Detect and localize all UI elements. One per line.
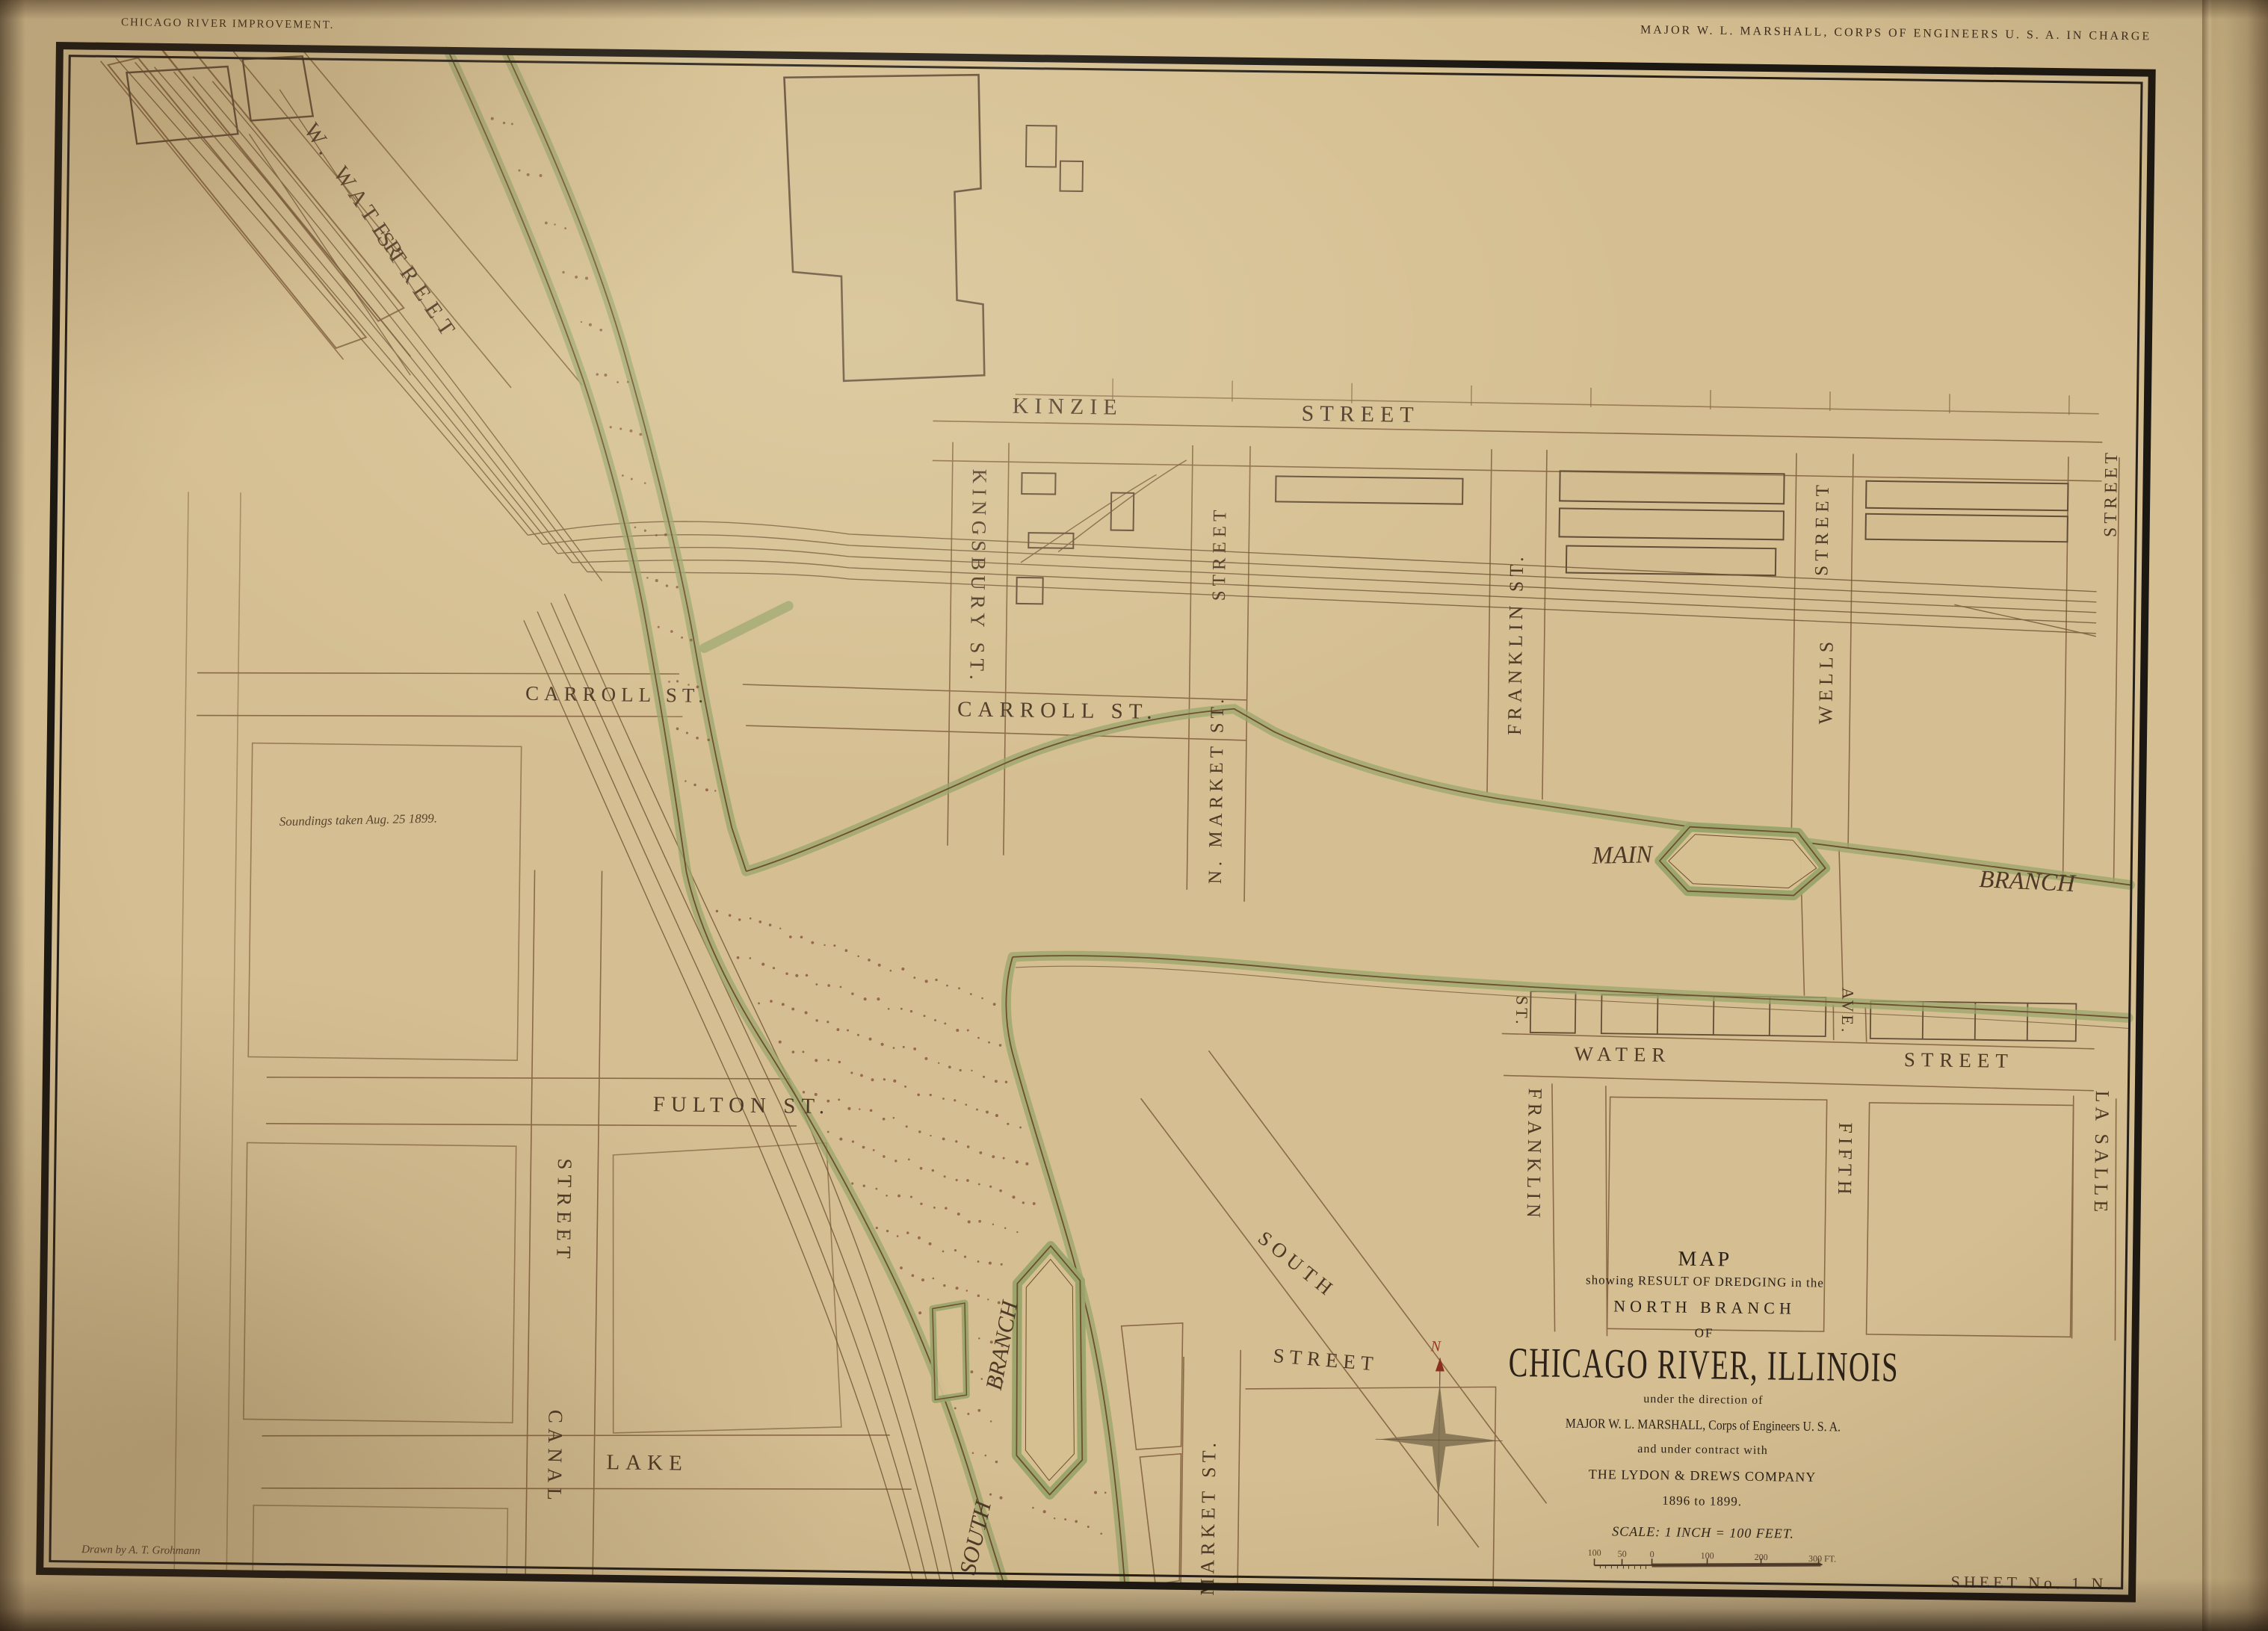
- map-label: KINGSBURY ST.: [966, 469, 989, 685]
- map-label: STREET: [373, 229, 463, 346]
- map-label: 0: [1650, 1550, 1654, 1559]
- map-label: 1896 to 1899.: [1662, 1494, 1742, 1508]
- map-label: 300 FT.: [1808, 1554, 1836, 1563]
- map-label: N: [1430, 1339, 1441, 1354]
- map-label: CHICAGO RIVER, ILLINOIS: [1508, 1342, 1899, 1389]
- map-label: CARROLL ST.: [525, 684, 708, 706]
- map-label: CANAL: [544, 1410, 566, 1505]
- map-label: and under contract with: [1637, 1443, 1768, 1457]
- map-label: AVE.: [1839, 987, 1856, 1035]
- map-label: STREET: [1301, 403, 1419, 427]
- map-label: MAJOR W. L. MARSHALL, Corps of Engineers…: [1566, 1417, 1841, 1434]
- map-label: 50: [1618, 1550, 1627, 1559]
- map-label: showing RESULT OF DREDGING in the: [1586, 1273, 1824, 1289]
- map-label: KINZIE: [1013, 395, 1123, 419]
- map-label: STREET: [2102, 449, 2122, 537]
- map-label: MAIN: [1592, 843, 1652, 869]
- map-label: STREET: [1210, 505, 1230, 601]
- map-label: STREET: [553, 1158, 575, 1263]
- map-label: MARKET ST.: [1198, 1438, 1220, 1596]
- map-label: ST.: [1513, 996, 1530, 1027]
- map-label: MAP: [1678, 1249, 1732, 1271]
- map-label: STREET: [1904, 1050, 2014, 1071]
- map-label: OF: [1695, 1326, 1714, 1339]
- map-label: FIFTH: [1835, 1122, 1855, 1199]
- map-label: NORTH BRANCH: [1613, 1298, 1796, 1316]
- map-photo: CHICAGO RIVER IMPROVEMENT. MAJOR W. L. M…: [0, 0, 2268, 1631]
- map-label: N. MARKET ST.: [1206, 695, 1227, 885]
- map-label: SCALE: 1 INCH = 100 FEET.: [1612, 1524, 1794, 1540]
- map-label: CARROLL ST.: [957, 699, 1158, 723]
- map-label: LAKE: [606, 1452, 688, 1474]
- map-label: WATER: [1574, 1044, 1671, 1065]
- map-label: STREET: [1273, 1346, 1379, 1375]
- map-label: SHEET No. 1 N.: [1950, 1573, 2115, 1592]
- map-labels: W. WATERSTREETKINZIESTREETKINGSBURY ST.S…: [36, 42, 2156, 1603]
- map-label: Soundings taken Aug. 25 1899.: [279, 812, 438, 829]
- map-label: SOUTH: [1255, 1228, 1340, 1302]
- map-label: BRANCH: [982, 1299, 1022, 1392]
- map-label: 100: [1588, 1548, 1601, 1557]
- map-label: BRANCH: [1979, 867, 2076, 897]
- map-label: WELLS: [1816, 637, 1837, 725]
- map-label: FRANKLIN: [1523, 1088, 1544, 1222]
- map-label: LA SALLE: [2091, 1090, 2112, 1216]
- map-label: THE LYDON & DREWS COMPANY: [1589, 1467, 1817, 1484]
- map-label: 200: [1755, 1553, 1768, 1562]
- map-label: 100: [1701, 1551, 1714, 1560]
- map-label: SOUTH: [956, 1499, 995, 1576]
- map-sheet: W. WATERSTREETKINZIESTREETKINGSBURY ST.S…: [36, 42, 2156, 1603]
- map-label: Drawn by A. T. Grohmann: [81, 1544, 200, 1557]
- map-label: STREET: [1812, 480, 1832, 576]
- map-label: under the direction of: [1643, 1393, 1763, 1407]
- map-label: FULTON ST.: [653, 1094, 831, 1118]
- map-label: FRANKLIN ST.: [1505, 552, 1527, 735]
